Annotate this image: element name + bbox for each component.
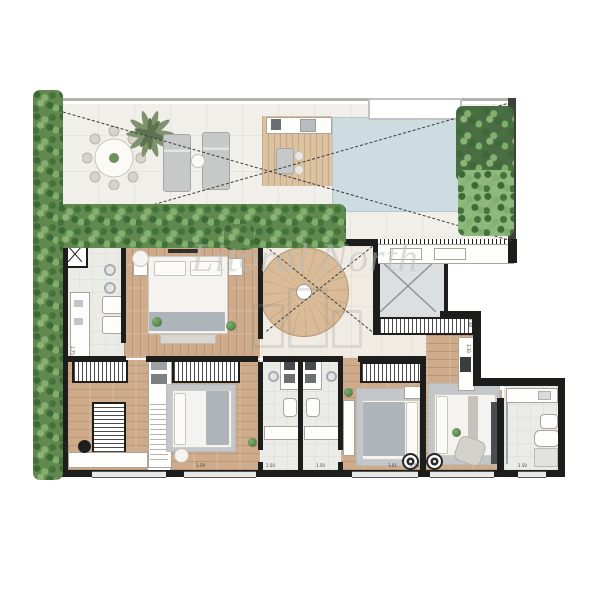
bathtub xyxy=(534,430,560,447)
bed-bench xyxy=(160,334,216,344)
plant xyxy=(152,317,162,327)
bed-blanket xyxy=(206,391,229,445)
wall-segment xyxy=(473,314,481,384)
hedge-left xyxy=(33,90,63,480)
dimension-label: 3.59 xyxy=(64,442,68,451)
pillow xyxy=(190,261,222,276)
wall-segment xyxy=(258,462,263,470)
pillow xyxy=(154,261,186,276)
pillow xyxy=(436,396,448,454)
glass-partition xyxy=(506,402,508,464)
plant xyxy=(226,321,236,331)
cabinet-item xyxy=(151,362,167,370)
wall-segment xyxy=(558,378,565,477)
outdoor-sink xyxy=(300,119,316,132)
pool-plants-light xyxy=(458,170,514,236)
toilet xyxy=(540,414,558,429)
wall-segment xyxy=(473,378,565,386)
dimension-label: 1.50 xyxy=(316,464,325,468)
cabinet-drawer xyxy=(390,248,422,260)
tv xyxy=(460,357,471,372)
duct-appliance xyxy=(284,361,295,370)
hedge-terrace xyxy=(58,204,346,248)
counter-item xyxy=(74,318,83,325)
sink xyxy=(102,296,123,314)
sink-counter xyxy=(264,426,299,440)
dimension-label: 1.50 xyxy=(266,464,275,468)
bedroom1-wardrobe xyxy=(172,360,240,383)
wall-segment xyxy=(373,239,378,335)
dimension-label: 3.30 xyxy=(466,344,470,353)
pillow xyxy=(174,393,186,445)
plant xyxy=(248,438,257,447)
sliding-glass-door xyxy=(352,471,418,478)
sun-lounger xyxy=(202,132,230,190)
duct-appliance xyxy=(305,374,316,383)
dimension-label: 1.50 xyxy=(518,464,527,468)
nightstand xyxy=(404,386,421,399)
nightstand xyxy=(228,258,243,276)
bedroom2-wardrobe xyxy=(360,362,422,383)
dimension-label: 3.59 xyxy=(196,464,205,468)
stair-center-column xyxy=(296,284,312,300)
wall-segment xyxy=(62,356,126,362)
deck-stool xyxy=(294,165,304,175)
shower-head xyxy=(268,371,279,382)
wall-segment xyxy=(338,462,343,470)
shower-head xyxy=(104,282,116,294)
wall-segment xyxy=(338,362,343,450)
sliding-glass-door xyxy=(430,471,494,478)
armchair xyxy=(132,250,149,267)
shower-head xyxy=(326,371,337,382)
closet-bench xyxy=(68,452,148,468)
sliding-glass-door xyxy=(92,471,166,478)
dimension-label: 2.48 xyxy=(468,318,472,327)
cabinet-item xyxy=(151,374,167,384)
duct-appliance xyxy=(305,361,316,370)
deck-table xyxy=(276,148,294,174)
tv-panel xyxy=(168,249,198,253)
wall-segment xyxy=(258,362,263,450)
dimension-label: 1.75 xyxy=(70,346,74,355)
basin xyxy=(538,391,551,400)
sliding-glass-door xyxy=(184,471,256,478)
bedside-stool xyxy=(174,448,189,463)
shower xyxy=(534,448,558,467)
closet-wardrobe-north xyxy=(72,360,128,383)
wall-segment xyxy=(121,243,126,343)
parapet-top-left xyxy=(40,98,300,101)
floor-plan: Litoral North 1.75 3.59 3.59 1.50 1.50 3… xyxy=(0,0,600,600)
wall-segment xyxy=(420,356,426,470)
sideboard xyxy=(343,400,355,456)
plant xyxy=(452,428,461,437)
wall-segment xyxy=(263,356,343,362)
sink xyxy=(102,316,123,334)
lounger-side-table xyxy=(191,154,205,168)
toilet xyxy=(306,398,320,417)
dimension-label: 3.01 xyxy=(388,464,397,468)
dimension-label: 5.00 xyxy=(410,464,419,468)
plant xyxy=(344,388,353,397)
wall-segment xyxy=(508,239,517,263)
pillow xyxy=(406,402,418,458)
corner-bush xyxy=(224,224,254,250)
shower-head xyxy=(104,264,116,276)
wall-segment xyxy=(497,398,504,470)
wall-segment xyxy=(358,356,422,362)
elevator xyxy=(376,256,448,324)
wall-segment xyxy=(258,239,263,339)
deck-stool xyxy=(294,151,304,161)
corridor-floor xyxy=(261,335,426,358)
linen-closet xyxy=(378,317,474,335)
counter-item xyxy=(74,300,83,307)
wall-segment xyxy=(146,356,258,362)
roof-planter xyxy=(368,98,462,120)
toilet xyxy=(283,398,297,417)
cabinet-drawer xyxy=(434,248,466,260)
closet-pouf xyxy=(78,440,91,453)
window xyxy=(518,471,546,478)
duct-appliance xyxy=(284,374,295,383)
sink-counter xyxy=(304,426,339,440)
grill xyxy=(271,119,281,130)
bed-blanket xyxy=(363,402,405,456)
wall-segment xyxy=(298,362,303,470)
bedside-stool xyxy=(426,453,443,470)
